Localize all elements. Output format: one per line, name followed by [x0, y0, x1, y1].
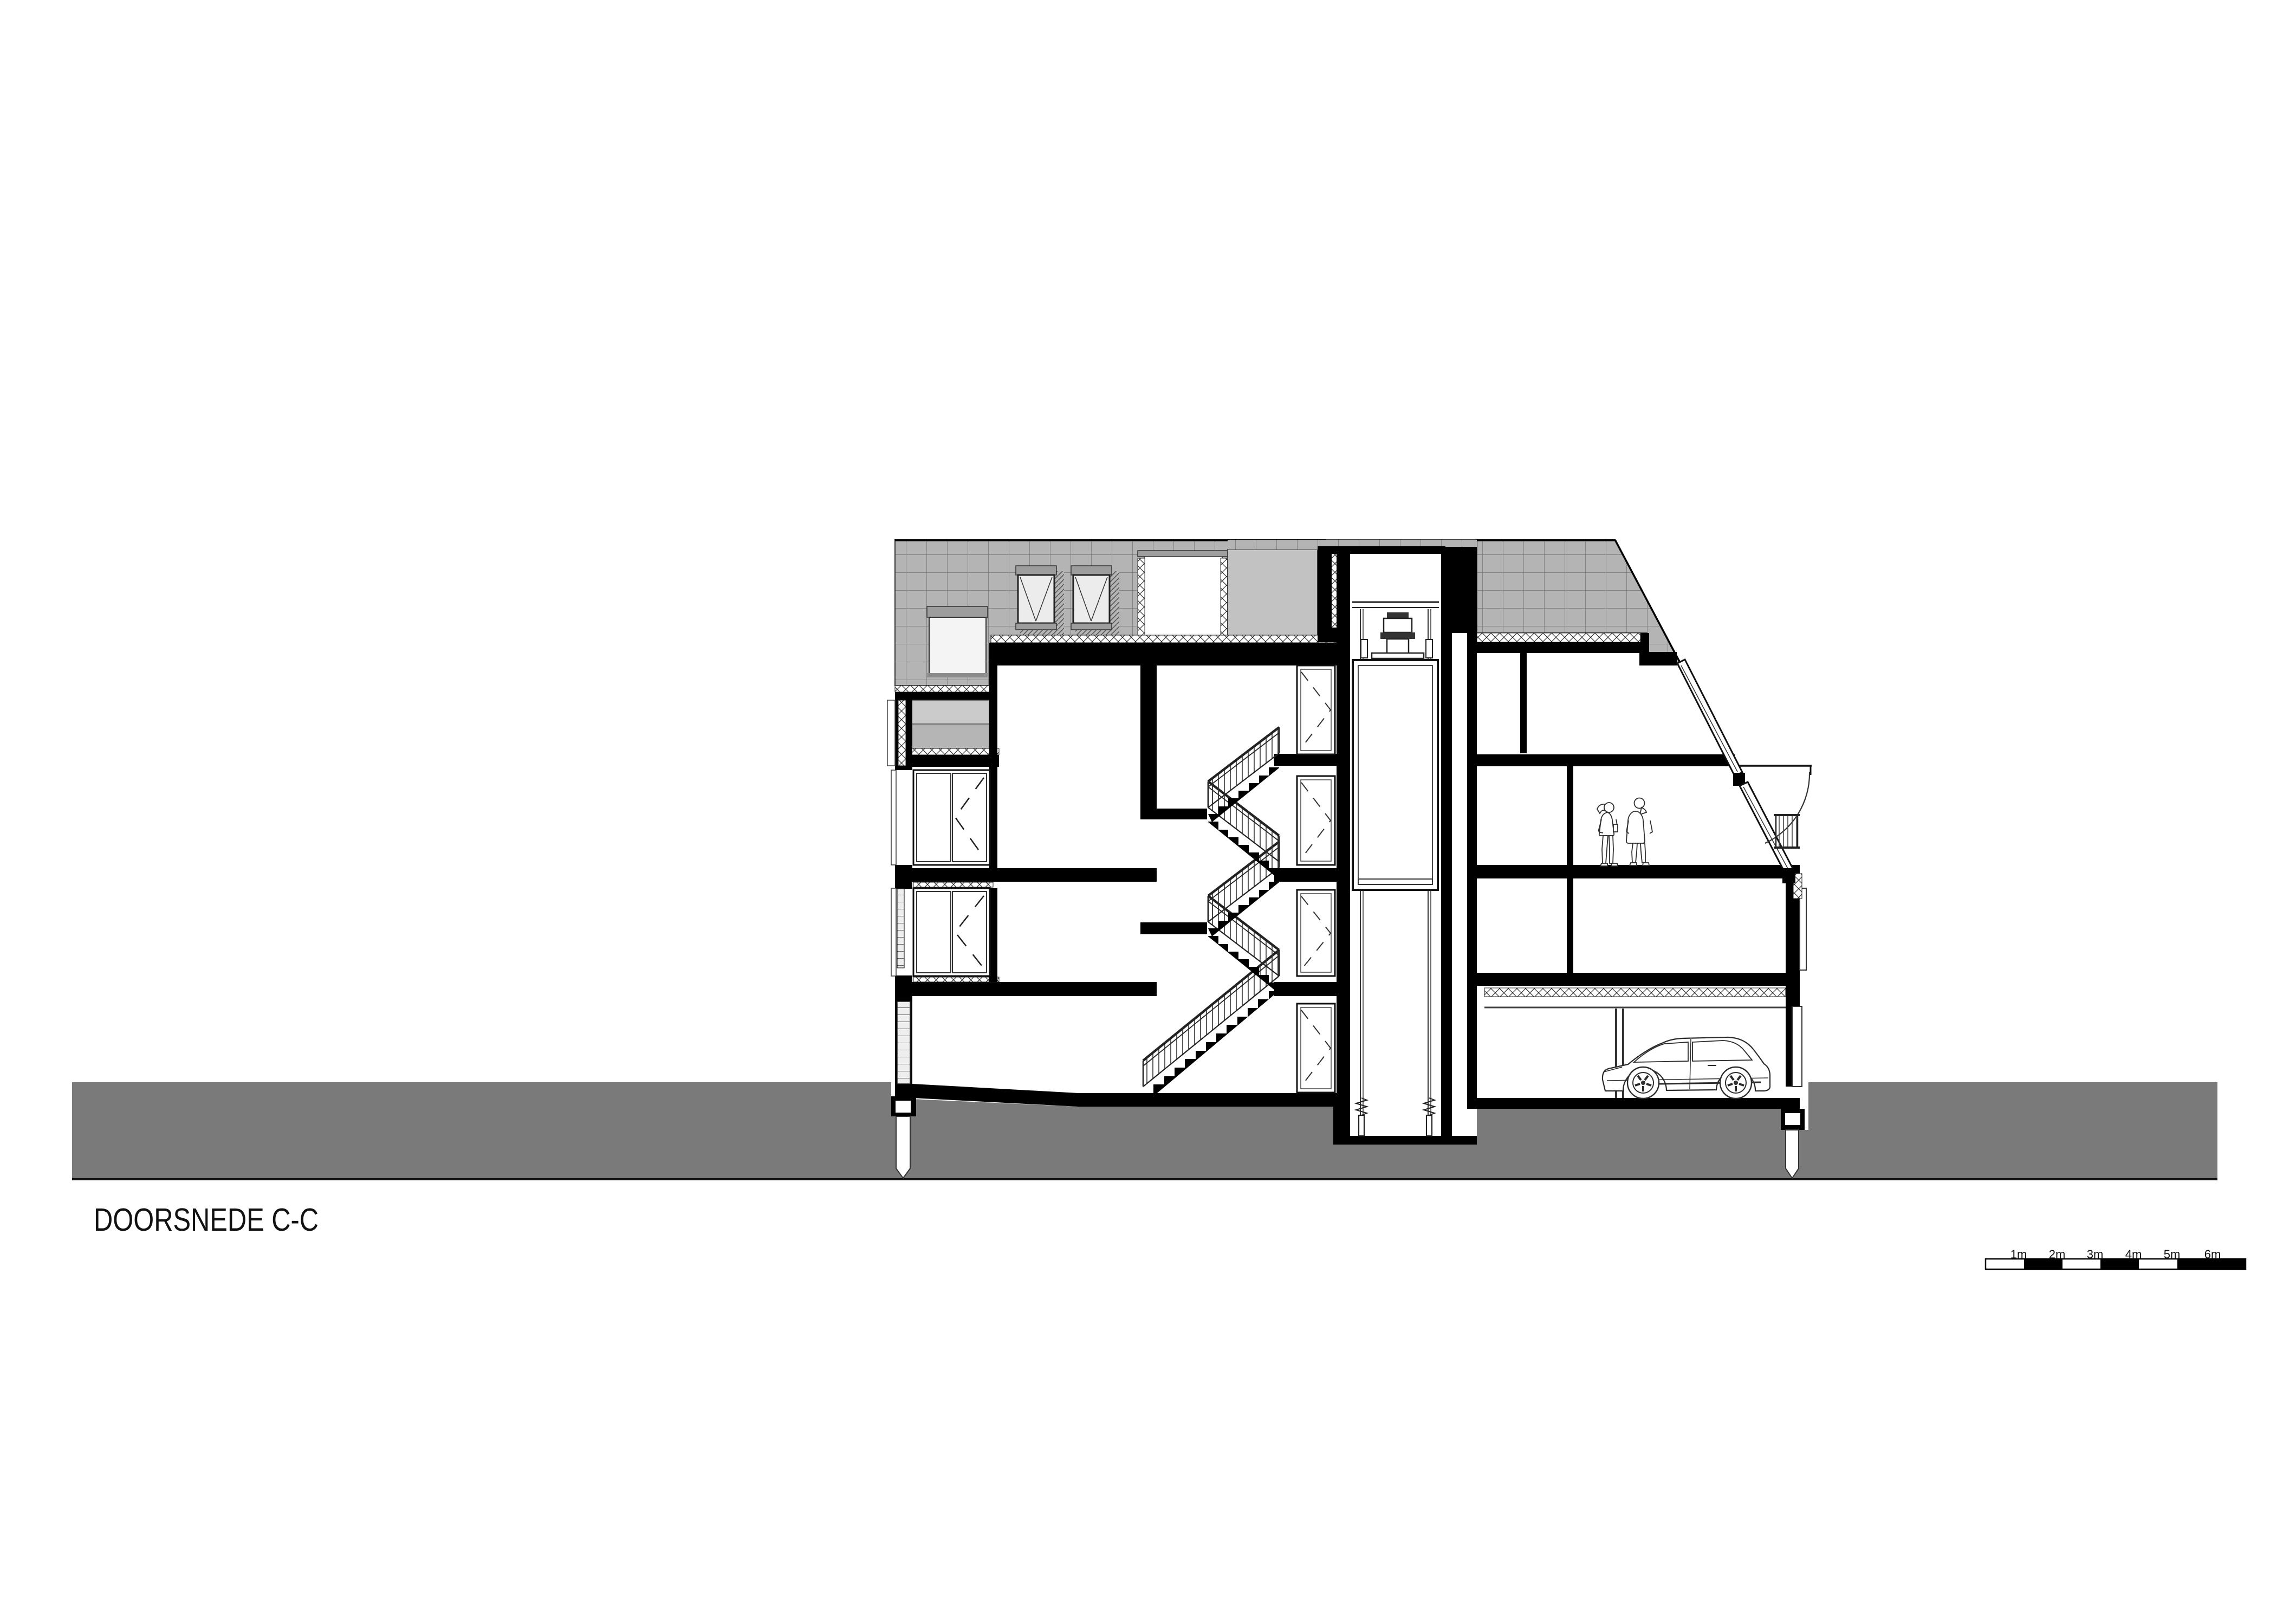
svg-text:6m: 6m: [2204, 1248, 2221, 1261]
svg-text:DOORSNEDE C-C: DOORSNEDE C-C: [94, 1202, 319, 1238]
svg-text:2m: 2m: [2049, 1248, 2066, 1261]
svg-text:1m: 1m: [2010, 1248, 2027, 1261]
svg-text:5m: 5m: [2164, 1248, 2181, 1261]
svg-text:3m: 3m: [2087, 1248, 2104, 1261]
svg-text:4m: 4m: [2125, 1248, 2142, 1261]
